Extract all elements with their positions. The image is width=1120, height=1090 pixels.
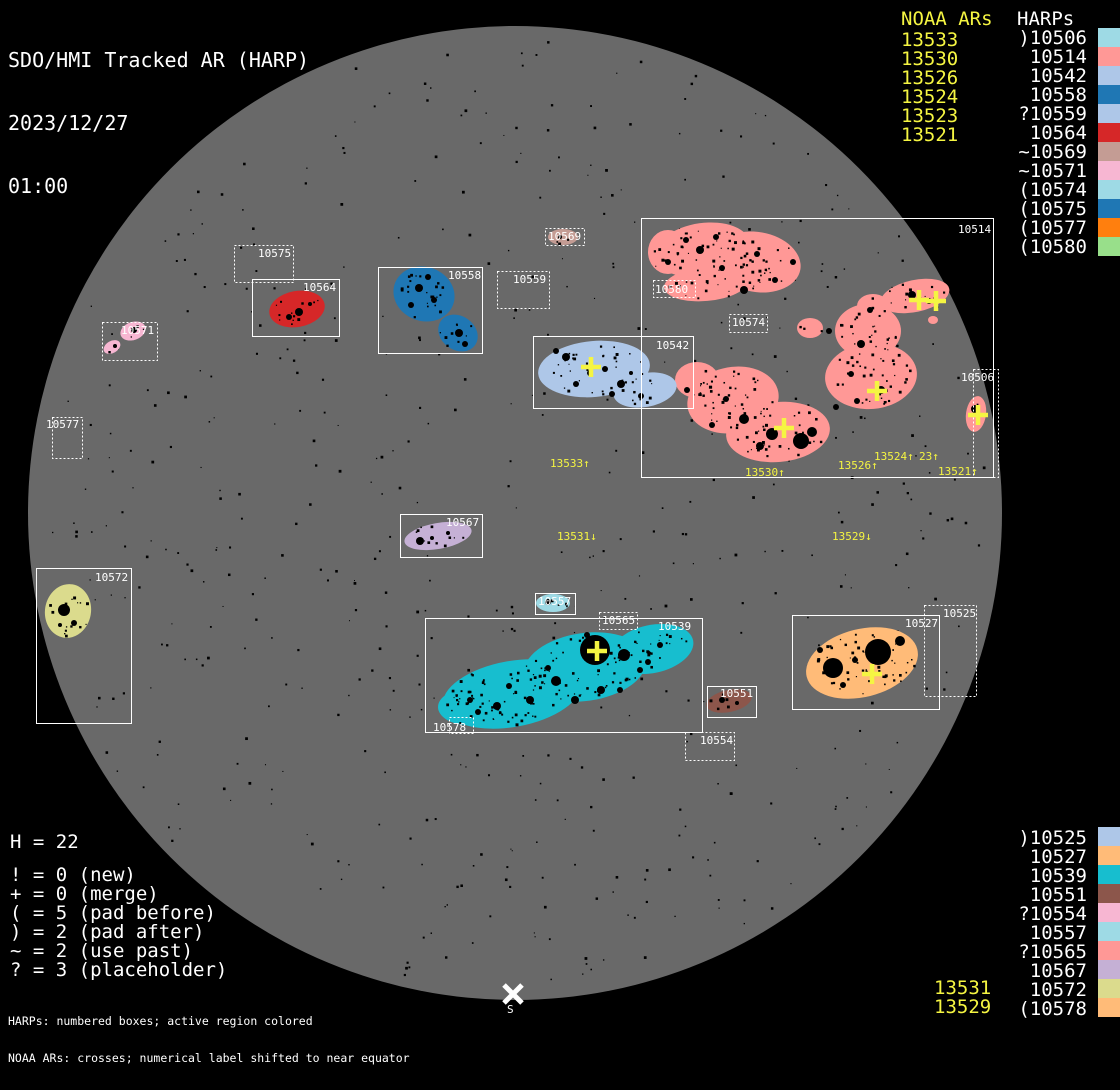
harp-color-swatch-10539 — [1098, 865, 1120, 884]
harp-color-swatch-10514 — [1098, 47, 1120, 66]
harp-color-swatches-bottom — [1098, 827, 1120, 1017]
harp-tracking-image: 1051410506105251052710539105421055110554… — [0, 0, 1120, 1024]
harp-color-swatch-10559 — [1098, 104, 1120, 123]
noaa-ar-list-bottom: 1353113529 — [934, 979, 991, 1017]
harp-color-swatch-10571 — [1098, 161, 1120, 180]
noaa-ar-list-top: 135331353013526135241352313521 — [901, 31, 958, 145]
footer: HARPs: numbered boxes; active region col… — [8, 990, 410, 1089]
harp-label-10559: 10559 — [513, 273, 546, 286]
harp-label-10506: 10506 — [961, 371, 994, 384]
harp-label-10580: 10580 — [655, 283, 688, 296]
harp-label-10564: 10564 — [303, 281, 336, 294]
harp-color-swatch-10506 — [1098, 28, 1120, 47]
harp-color-swatch-10564 — [1098, 123, 1120, 142]
harp-color-swatch-10575 — [1098, 199, 1120, 218]
noaa-disk-label-13530: 13530↑ — [745, 466, 785, 479]
legend-harp-10578: (10578 — [1010, 1000, 1087, 1019]
harp-color-swatch-10527 — [1098, 846, 1120, 865]
harp-color-swatch-10565 — [1098, 941, 1120, 960]
harp-label-10572: 10572 — [95, 571, 128, 584]
harp-label-10574: 10574 — [732, 316, 765, 329]
symbol-legend-line-5: ? = 3 (placeholder) — [10, 961, 227, 980]
harp-color-swatch-10578 — [1098, 998, 1120, 1017]
harp-label-10539: 10539 — [658, 620, 691, 633]
harp-label-10571: 10571 — [121, 324, 154, 337]
harp-label-10567: 10567 — [446, 516, 479, 529]
harp-label-10578: 10578 — [433, 721, 466, 734]
noaa-disk-label-23: 23↑ — [919, 450, 939, 463]
harp-color-swatch-10569 — [1098, 142, 1120, 161]
harp-color-swatch-10577 — [1098, 218, 1120, 237]
legend-harp-10580: (10580 — [1010, 238, 1087, 257]
harp-label-10575: 10575 — [258, 247, 291, 260]
harp-label-10577: 10577 — [46, 418, 79, 431]
noaa-disk-label-13526: 13526↑ — [838, 459, 878, 472]
harp-color-swatch-10558 — [1098, 85, 1120, 104]
harp-color-swatch-10557 — [1098, 922, 1120, 941]
harp-list-bottom: )10525105271053910551?1055410557?1056510… — [1010, 829, 1087, 1019]
harp-color-swatch-10551 — [1098, 884, 1120, 903]
south-marker-label: S — [507, 1003, 514, 1016]
noaa-disk-label-13521: 13521↑ — [938, 465, 978, 478]
footer-line1: HARPs: numbered boxes; active region col… — [8, 1015, 410, 1027]
harp-label-10565: 10565 — [602, 614, 635, 627]
time-label: 01:00 — [8, 176, 309, 197]
harp-color-swatch-10542 — [1098, 66, 1120, 85]
noaa-disk-label-13533: 13533↑ — [550, 457, 590, 470]
harp-label-10527: 10527 — [905, 617, 938, 630]
symbol-legend: ! = 0 (new)+ = 0 (merge)( = 5 (pad befor… — [10, 866, 227, 980]
noaa-disk-label-13529: 13529↓ — [832, 530, 872, 543]
harp-color-swatch-10554 — [1098, 903, 1120, 922]
page-title: SDO/HMI Tracked AR (HARP) — [8, 50, 309, 71]
harp-color-swatch-10525 — [1098, 827, 1120, 846]
legend-noaa-ar-13521: 13521 — [901, 126, 958, 145]
harp-label-10525: 10525 — [943, 607, 976, 620]
harp-label-10557: 10557 — [538, 595, 571, 608]
noaa-disk-label-13531: 13531↓ — [557, 530, 597, 543]
harp-label-10514: 10514 — [958, 223, 991, 236]
harp-label-10558: 10558 — [448, 269, 481, 282]
harp-count: H = 22 — [10, 833, 79, 852]
harp-color-swatches-top — [1098, 28, 1120, 256]
harp-list-top: )10506105141054210558?1055910564~10569~1… — [1010, 29, 1087, 257]
legend-noaa-ar-13529: 13529 — [934, 998, 991, 1017]
footer-line2: NOAA ARs: crosses; numerical label shift… — [8, 1052, 410, 1064]
noaa-disk-label-13524: 13524↑ — [874, 450, 914, 463]
harp-label-10542: 10542 — [656, 339, 689, 352]
harp-label-10569: 10569 — [548, 230, 581, 243]
harp-color-swatch-10574 — [1098, 180, 1120, 199]
harp-label-10551: 10551 — [720, 687, 753, 700]
harp-label-10554: 10554 — [700, 734, 733, 747]
harp-color-swatch-10567 — [1098, 960, 1120, 979]
harp-color-swatch-10572 — [1098, 979, 1120, 998]
date-label: 2023/12/27 — [8, 113, 309, 134]
harp-color-swatch-10580 — [1098, 237, 1120, 256]
noaa-ars-title: NOAA ARs — [901, 10, 993, 29]
header: SDO/HMI Tracked AR (HARP) 2023/12/27 01:… — [8, 8, 309, 239]
